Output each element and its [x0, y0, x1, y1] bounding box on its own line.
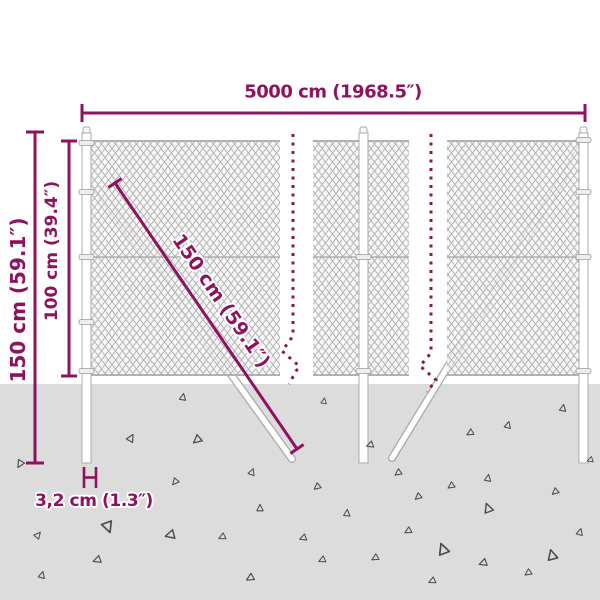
total-width-label: 5000 cm (1968.5″) — [244, 82, 422, 103]
mesh-height-label: 100 cm (39.4″) — [42, 181, 62, 321]
mesh-height-dimension-line — [61, 141, 77, 376]
post-thickness-label: 3,2 cm (1.3″) — [35, 491, 153, 511]
mesh-panel-right — [447, 140, 580, 376]
break-line-right — [420, 134, 436, 392]
post-height-label: 150 cm (59.1″) — [6, 218, 30, 383]
total-width-dimension-line — [82, 104, 585, 122]
fence-dimension-diagram: 5000 cm (1968.5″) 150 cm (59.1″) 100 cm … — [0, 0, 600, 600]
break-line-left — [282, 134, 299, 384]
